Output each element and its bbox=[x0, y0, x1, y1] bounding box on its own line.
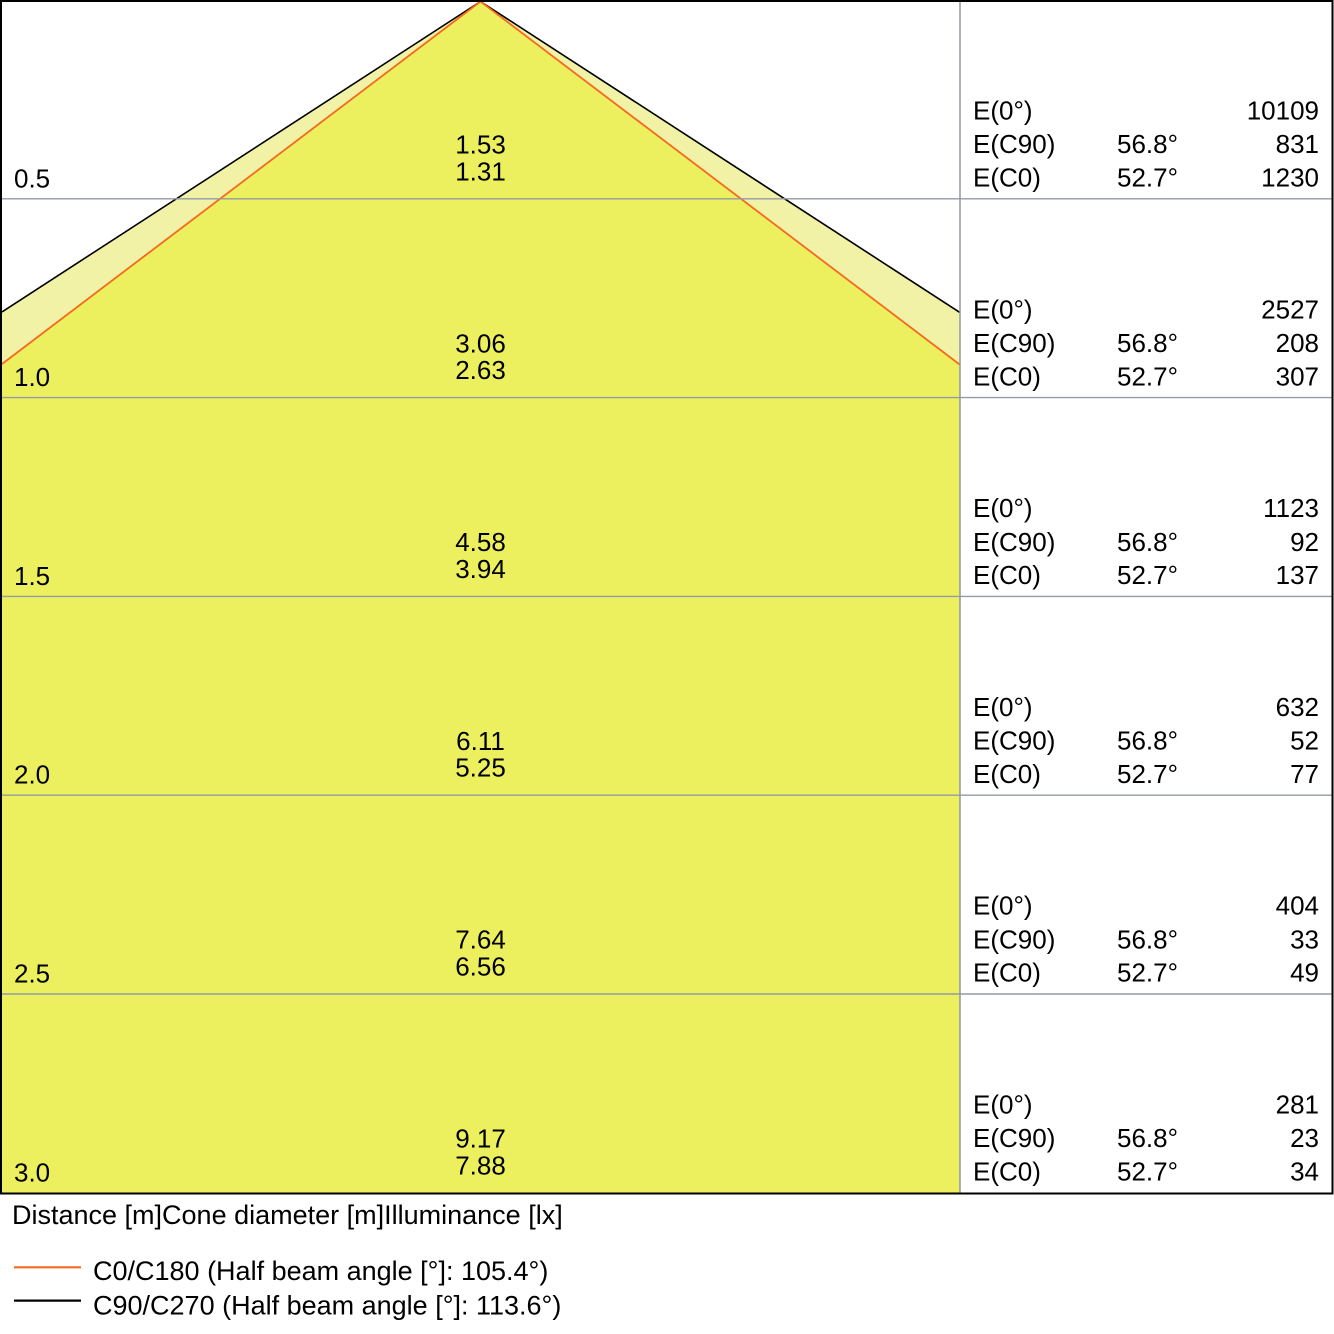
svg-text:2.0: 2.0 bbox=[14, 760, 50, 790]
svg-text:E(0°): E(0°) bbox=[973, 1090, 1033, 1120]
svg-text:E(C90): E(C90) bbox=[973, 726, 1055, 756]
svg-text:3.0: 3.0 bbox=[14, 1157, 50, 1187]
svg-text:0.5: 0.5 bbox=[14, 163, 50, 193]
svg-text:137: 137 bbox=[1276, 560, 1319, 590]
svg-text:632: 632 bbox=[1276, 692, 1319, 722]
svg-text:5.25: 5.25 bbox=[455, 753, 506, 783]
svg-text:56.8°: 56.8° bbox=[1117, 1123, 1178, 1153]
svg-text:E(C0): E(C0) bbox=[973, 361, 1041, 391]
svg-text:1123: 1123 bbox=[1263, 493, 1319, 523]
svg-text:2.63: 2.63 bbox=[455, 355, 506, 385]
svg-text:2.5: 2.5 bbox=[14, 959, 50, 989]
svg-text:33: 33 bbox=[1290, 924, 1319, 954]
svg-text:3.06: 3.06 bbox=[455, 328, 506, 358]
svg-text:3.94: 3.94 bbox=[455, 554, 506, 584]
svg-text:E(C90): E(C90) bbox=[973, 924, 1055, 954]
svg-text:56.8°: 56.8° bbox=[1117, 328, 1178, 358]
svg-text:E(0°): E(0°) bbox=[973, 891, 1033, 921]
svg-text:52.7°: 52.7° bbox=[1117, 560, 1178, 590]
svg-text:E(C90): E(C90) bbox=[973, 527, 1055, 557]
svg-text:E(0°): E(0°) bbox=[973, 692, 1033, 722]
svg-text:1.53: 1.53 bbox=[455, 130, 506, 160]
svg-text:52.7°: 52.7° bbox=[1117, 759, 1178, 789]
svg-text:E(C90): E(C90) bbox=[973, 328, 1055, 358]
svg-text:E(C0): E(C0) bbox=[973, 958, 1041, 988]
svg-text:34: 34 bbox=[1290, 1157, 1319, 1187]
svg-text:7.64: 7.64 bbox=[455, 925, 506, 955]
svg-text:E(0°): E(0°) bbox=[973, 294, 1033, 324]
svg-text:831: 831 bbox=[1276, 129, 1319, 159]
svg-text:52.7°: 52.7° bbox=[1117, 361, 1178, 391]
svg-text:52.7°: 52.7° bbox=[1117, 958, 1178, 988]
svg-text:E(0°): E(0°) bbox=[973, 96, 1033, 126]
svg-text:404: 404 bbox=[1276, 891, 1319, 921]
svg-text:C90/C270 (Half beam angle [°]:: C90/C270 (Half beam angle [°]: 113.6°) bbox=[93, 1291, 561, 1321]
svg-text:208: 208 bbox=[1276, 328, 1319, 358]
svg-text:C0/C180 (Half beam angle [°]:: C0/C180 (Half beam angle [°]: 105.4°) bbox=[93, 1256, 548, 1286]
svg-text:E(C90): E(C90) bbox=[973, 129, 1055, 159]
svg-text:Distance [m]Cone diameter [m]I: Distance [m]Cone diameter [m]Illuminance… bbox=[12, 1200, 563, 1230]
svg-text:E(C0): E(C0) bbox=[973, 1157, 1041, 1187]
svg-text:1.31: 1.31 bbox=[455, 156, 506, 186]
svg-text:E(0°): E(0°) bbox=[973, 493, 1033, 523]
svg-text:6.11: 6.11 bbox=[456, 726, 505, 756]
svg-text:E(C0): E(C0) bbox=[973, 560, 1041, 590]
svg-text:56.8°: 56.8° bbox=[1117, 129, 1178, 159]
svg-text:2527: 2527 bbox=[1261, 294, 1319, 324]
svg-text:77: 77 bbox=[1290, 759, 1319, 789]
svg-text:6.56: 6.56 bbox=[455, 952, 506, 982]
svg-text:7.88: 7.88 bbox=[455, 1150, 506, 1180]
svg-text:56.8°: 56.8° bbox=[1117, 924, 1178, 954]
svg-text:E(C90): E(C90) bbox=[973, 1123, 1055, 1153]
svg-text:52.7°: 52.7° bbox=[1117, 1157, 1178, 1187]
svg-text:1230: 1230 bbox=[1261, 163, 1319, 193]
svg-text:49: 49 bbox=[1290, 958, 1319, 988]
svg-text:E(C0): E(C0) bbox=[973, 759, 1041, 789]
svg-text:1.5: 1.5 bbox=[14, 561, 50, 591]
svg-text:23: 23 bbox=[1290, 1123, 1319, 1153]
svg-text:10109: 10109 bbox=[1247, 96, 1319, 126]
svg-text:92: 92 bbox=[1290, 527, 1319, 557]
svg-text:1.0: 1.0 bbox=[14, 362, 50, 392]
svg-text:E(C0): E(C0) bbox=[973, 163, 1041, 193]
svg-text:281: 281 bbox=[1276, 1090, 1319, 1120]
svg-text:56.8°: 56.8° bbox=[1117, 726, 1178, 756]
svg-text:9.17: 9.17 bbox=[455, 1124, 506, 1154]
svg-text:56.8°: 56.8° bbox=[1117, 527, 1178, 557]
svg-text:52.7°: 52.7° bbox=[1117, 163, 1178, 193]
svg-text:52: 52 bbox=[1290, 726, 1319, 756]
svg-text:4.58: 4.58 bbox=[455, 527, 506, 557]
svg-text:307: 307 bbox=[1276, 361, 1319, 391]
